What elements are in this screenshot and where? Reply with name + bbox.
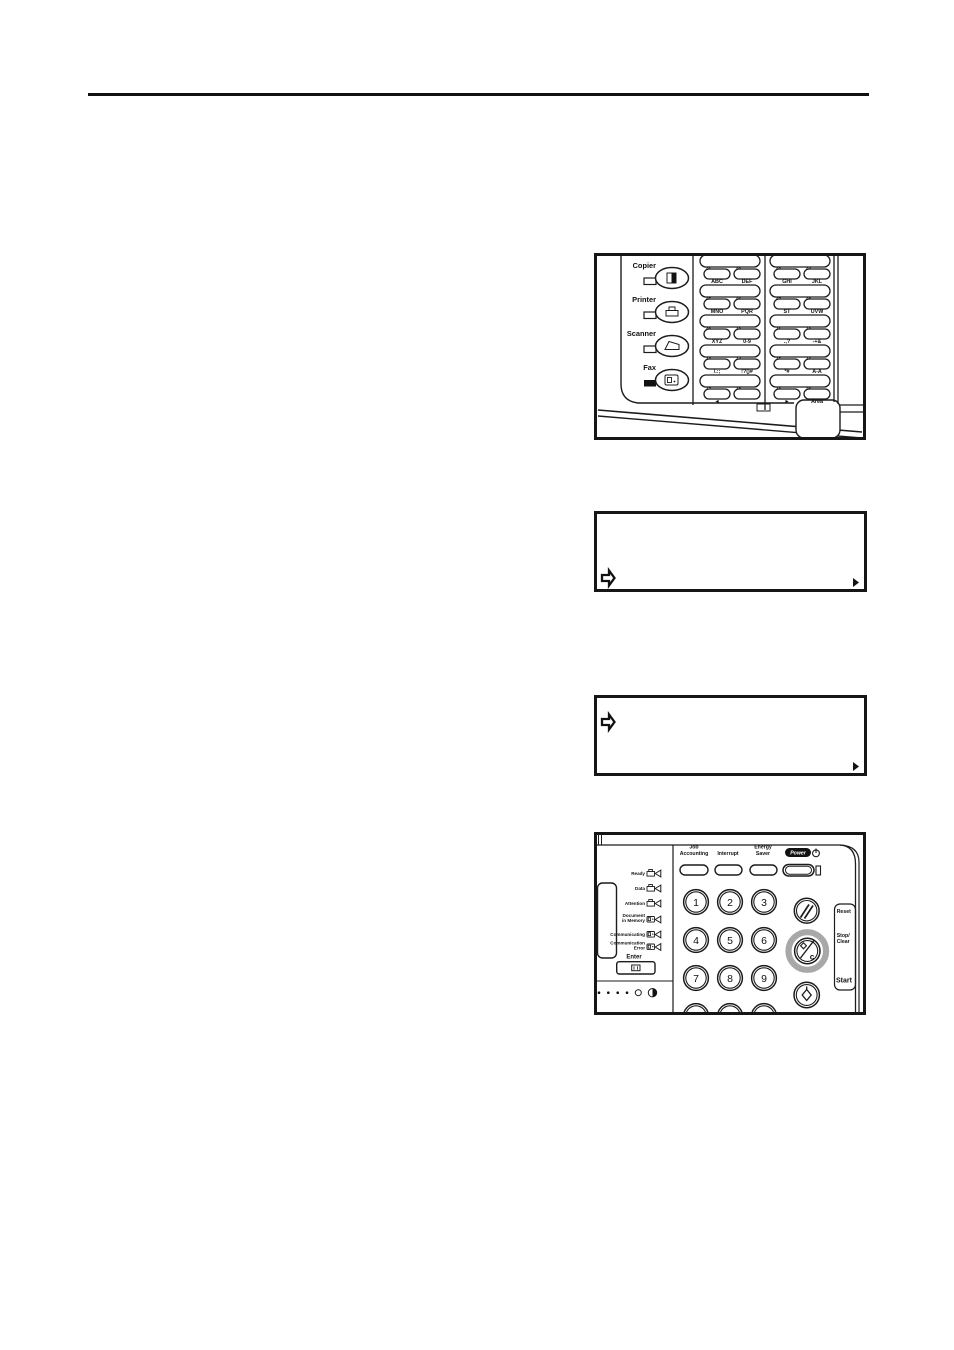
stop-clear-label: Clear [837, 939, 850, 945]
power-key: Power [783, 848, 821, 876]
svg-text:Energy: Energy [754, 845, 772, 851]
svg-text:9: 9 [761, 973, 767, 985]
svg-text:0-9: 0-9 [743, 339, 751, 345]
led-pointer-triangle [655, 916, 661, 923]
svg-text:GHI: GHI [782, 279, 792, 285]
one-touch-key-18: 18 [734, 387, 760, 400]
svg-text:Ready: Ready [631, 871, 645, 876]
svg-text:1: 1 [693, 897, 699, 909]
one-touch-key-01: 01ABC [704, 267, 730, 286]
keypad-bottom-row-partial [684, 1004, 777, 1012]
svg-text:Data: Data [635, 886, 645, 891]
machine-right-edge [840, 845, 859, 1012]
reset-key [794, 898, 819, 923]
led-pointer-triangle [655, 870, 661, 877]
one-touch-key-08: 08UVW [804, 297, 830, 316]
more-indicator-triangle [853, 578, 859, 587]
mode-key-scanner: Scanner [627, 329, 689, 357]
svg-text:Interrupt: Interrupt [717, 851, 739, 857]
manual-page: { "page": {"background": "#ffffff", "rul… [0, 0, 954, 1350]
one-touch-key-16: 16A-A [804, 357, 830, 376]
keypad-key-6: 6 [752, 928, 777, 953]
power-led [816, 866, 821, 875]
svg-text:c: c [810, 953, 815, 962]
svg-text:Job: Job [689, 845, 698, 851]
section-divider-rule [88, 93, 869, 96]
keypad-key-1: 1 [684, 890, 709, 915]
step-arrow-icon [602, 715, 615, 730]
printer-icon [647, 870, 655, 877]
more-indicator-triangle [853, 762, 859, 771]
copier-led [644, 278, 656, 285]
step-arrow-icon [602, 571, 615, 586]
mode-key-copier: Copier [633, 261, 689, 289]
lcd-screen-edge [598, 883, 617, 958]
one-touch-key-03: 03GHI [774, 267, 800, 286]
svg-text:in Memory: in Memory [622, 918, 645, 923]
svg-text:7: 7 [693, 973, 699, 985]
svg-text:PQR: PQR [741, 309, 753, 315]
svg-text:►: ► [784, 399, 789, 405]
stop-clear-key-highlighted: c [789, 932, 827, 970]
lcd-display-1 [594, 511, 867, 592]
figure-operation-panel: Ready Data Attention Document in Memory … [594, 832, 866, 1015]
printer-icon [647, 885, 655, 892]
fax-icon [647, 944, 655, 950]
scanner-label: Scanner [627, 329, 656, 338]
enter-key [617, 962, 655, 974]
panel-corner-tab [796, 400, 840, 437]
lcd-display-2 [594, 695, 867, 776]
led-pointer-triangle [655, 944, 661, 951]
machine-left-edge [599, 835, 602, 845]
one-touch-key-11: 11.,? [774, 327, 800, 346]
start-label: Start [836, 978, 853, 985]
svg-text:5: 5 [727, 935, 733, 947]
one-touch-key-05: 05MNO [704, 297, 730, 316]
reset-label: Reset [837, 909, 851, 915]
start-key [794, 982, 819, 1007]
svg-text:4: 4 [693, 935, 699, 947]
svg-text:XYZ: XYZ [712, 339, 723, 345]
one-touch-key-02: 02DEF [734, 267, 760, 286]
half-filled-circle-icon [648, 989, 656, 997]
svg-text:3: 3 [761, 897, 767, 909]
keypad-key-3: 3 [752, 890, 777, 915]
fax-led-on [644, 380, 656, 387]
one-touch-key-09: 09XYZ [704, 327, 730, 346]
fax-label: Fax [643, 363, 657, 372]
svg-text:Attention: Attention [625, 901, 645, 906]
svg-text:*#: *# [784, 369, 789, 375]
svg-text:-+&: -+& [813, 339, 822, 345]
mode-key-printer: Printer [632, 295, 688, 323]
svg-text:.,?: .,? [784, 339, 790, 345]
keypad-key-9: 9 [752, 966, 777, 991]
svg-text:Error: Error [634, 946, 645, 951]
led-pointer-triangle [655, 885, 661, 892]
fax-icon [647, 932, 655, 938]
svg-text:8: 8 [727, 973, 733, 985]
enter-label: Enter [626, 954, 642, 960]
svg-text:ABC: ABC [711, 279, 723, 285]
status-indicator-communication-error: Communication Error [610, 941, 661, 951]
status-indicator-ready: Ready [631, 870, 661, 877]
svg-text:A-A: A-A [812, 369, 822, 375]
svg-text:6: 6 [761, 935, 767, 947]
one-touch-key-13: 13/.:; [704, 357, 730, 376]
printer-led [644, 312, 656, 319]
fax-icon [665, 375, 678, 385]
one-touch-key-15: 15*# [774, 357, 800, 376]
one-touch-key-07: 07ST [774, 297, 800, 316]
printer-label: Printer [632, 295, 656, 304]
density-scale [598, 989, 657, 997]
keypad-key-7: 7 [684, 966, 709, 991]
energy-saver-button: Energy Saver [750, 845, 777, 876]
mode-key-fax: Fax [643, 363, 688, 391]
panel-notch [757, 404, 770, 411]
status-indicator-communicating: Communicating [610, 931, 661, 938]
status-indicator-document-in-memory: Document in Memory [622, 913, 661, 923]
interrupt-button: Interrupt [715, 851, 742, 875]
one-touch-key-10: 100-9 [734, 327, 760, 346]
keypad-key-4: 4 [684, 928, 709, 953]
fax-icon [647, 917, 655, 923]
svg-text:ST: ST [784, 309, 792, 315]
svg-text:Communicating: Communicating [610, 932, 645, 937]
led-pointer-triangle [655, 931, 661, 938]
svg-text:Area: Area [811, 399, 824, 405]
one-touch-key-12: 12-+& [804, 327, 830, 346]
status-indicator-attention: Attention [625, 900, 661, 907]
svg-text:2: 2 [727, 897, 733, 909]
status-indicator-data: Data [635, 885, 661, 892]
svg-text:JKL: JKL [812, 279, 823, 285]
svg-text:!?()#: !?()# [741, 369, 753, 375]
svg-text:MNO: MNO [711, 309, 724, 315]
copier-icon [667, 273, 676, 283]
scanner-led [644, 346, 656, 353]
copier-label: Copier [633, 261, 657, 270]
one-touch-key-19: 19► [774, 387, 800, 406]
svg-text:UVW: UVW [811, 309, 824, 315]
keypad-key-2: 2 [718, 890, 743, 915]
svg-text:Saver: Saver [756, 851, 770, 857]
open-circle-icon [635, 990, 641, 996]
one-touch-key-14: 14!?()# [734, 357, 760, 376]
one-touch-key-04: 04JKL [804, 267, 830, 286]
power-symbol-icon [813, 849, 820, 857]
figure-fax-mode-panel: Copier Printer Scanner Fax [594, 253, 866, 440]
svg-text:Power: Power [790, 851, 807, 857]
one-touch-key-17: 17◄ [704, 387, 730, 406]
keypad: 1 2 3 4 5 6 7 8 9 [684, 890, 777, 1012]
keypad-key-5: 5 [718, 928, 743, 953]
svg-text:/.:;: /.:; [714, 369, 721, 375]
led-pointer-triangle [655, 900, 661, 907]
keypad-key-8: 8 [718, 966, 743, 991]
job-accounting-button: Job Accounting [680, 845, 709, 876]
one-touch-key-06: 06PQR [734, 297, 760, 316]
enter-key-symbol [632, 965, 640, 971]
svg-text:DEF: DEF [742, 279, 753, 285]
svg-text:◄: ◄ [714, 399, 719, 405]
svg-text:Accounting: Accounting [680, 851, 709, 857]
printer-icon [647, 900, 655, 907]
